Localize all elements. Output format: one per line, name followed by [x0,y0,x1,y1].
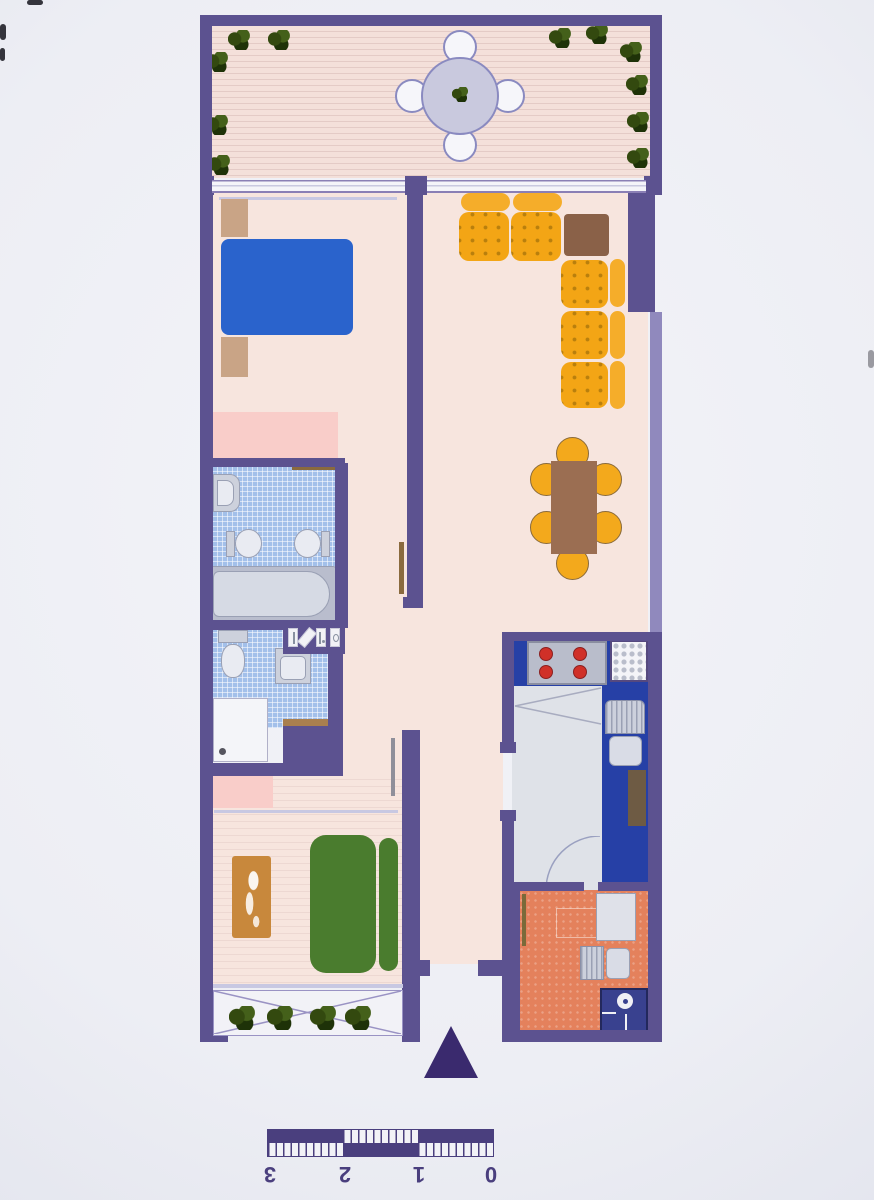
shower-drain [219,748,226,755]
plant-icon [626,75,648,95]
stove [527,641,607,685]
scale-segment [343,1143,418,1156]
plant-icon [310,1006,336,1030]
bed-bolster [379,838,398,971]
scan-artifact [27,0,43,5]
burner-icon [539,665,553,679]
double-bed [221,239,353,335]
kitchen-sink-drainer [605,700,645,734]
burner-icon [573,647,587,661]
utility-unit [600,988,648,1032]
utility-sink-drainer [580,946,604,980]
scanned-floor-plan: 3 2 1 0 [0,0,874,1200]
plant-icon [627,148,649,168]
cabinet-lines [513,686,603,734]
sofa-seat [561,260,608,308]
closet-line [214,810,398,813]
sofa-backrest [513,193,562,211]
bathtub-basin [213,571,330,617]
plant-icon [549,28,571,48]
entrance-jamb [418,960,430,976]
washing-machine [596,893,636,941]
scan-artifact [0,48,5,61]
utility-sink-basin [606,948,630,979]
wall [502,1030,660,1042]
plant-icon [345,1006,371,1030]
toilet-tank [226,531,235,557]
kitchen-appliance [628,770,646,826]
wall [502,632,660,641]
sofa-backrest [610,311,625,359]
wall [200,763,290,776]
scale-bar [268,1130,493,1156]
window-wall [650,312,662,634]
plant-icon [228,30,250,50]
kitchen-vent [610,640,648,682]
window-glazing [212,180,405,193]
plant-icon [267,1006,293,1030]
drain-dot [623,999,628,1004]
sofa-corner-table [564,214,609,256]
plant-icon [268,30,290,50]
wardrobe [205,776,273,808]
scale-segment [418,1143,493,1156]
burner-icon [539,647,553,661]
door-leaf [399,542,404,594]
scan-artifact [0,24,6,40]
wall [335,463,348,628]
bidet-tank [321,531,330,557]
scale-label: 2 [330,1160,360,1188]
wall [283,726,343,776]
kitchen-sink-basin [609,736,642,766]
wall [200,1035,228,1042]
appliance-icon [316,628,326,647]
appliance-icon [297,627,317,648]
entrance-jamb [478,960,502,976]
scan-artifact [868,350,874,368]
wall [407,193,423,600]
nightstand [221,199,248,237]
sofa-backrest [461,193,510,211]
plant-icon [452,87,468,102]
scale-label: 3 [255,1160,285,1188]
sink-basin [217,480,234,506]
wall [650,15,662,181]
sofa-backrest [610,259,625,307]
door-leaf [522,894,526,946]
appliance-icon [288,628,298,647]
wardrobe [205,412,338,458]
wall [502,814,514,884]
scale-segment [268,1130,343,1143]
sink-basin [280,656,306,680]
wall [502,632,514,748]
plant-icon [620,42,642,62]
plant-icon [229,1006,255,1030]
appliance-icon [330,628,340,647]
wall [402,730,420,1042]
wall [628,193,655,312]
burner-icon [573,665,587,679]
wall [200,15,212,181]
wall [648,632,662,1042]
nightstand [221,337,248,377]
scale-segment [268,1143,343,1156]
scale-segment [343,1130,418,1143]
toilet-tank [218,630,248,643]
scale-label: 1 [404,1160,434,1188]
sofa-seat [561,362,608,408]
scale-label: 0 [476,1160,506,1188]
door-leaf [391,738,395,796]
sofa-seat [561,311,608,359]
divider-line [602,1012,616,1014]
dining-table [551,461,597,554]
window-glazing [213,984,403,988]
sofa-backrest [610,361,625,409]
bidet-bowl [294,529,321,558]
window-glazing [427,180,646,193]
rug [232,856,271,938]
plant-icon [586,24,608,44]
wall [500,742,516,753]
single-bed [310,835,376,973]
door-swing-outline [556,908,600,938]
scale-segment [418,1130,493,1143]
entrance-arrow [424,1026,478,1078]
wall [200,458,345,467]
toilet-bowl [235,529,262,558]
plant-icon [627,112,649,132]
wall [200,193,213,1042]
wall [200,15,662,26]
sofa-seat [459,212,509,261]
sofa-seat [511,212,561,261]
toilet-bowl [221,644,245,678]
wall [502,884,520,1034]
wall [403,597,423,608]
appliance-symbol-box [283,622,345,654]
